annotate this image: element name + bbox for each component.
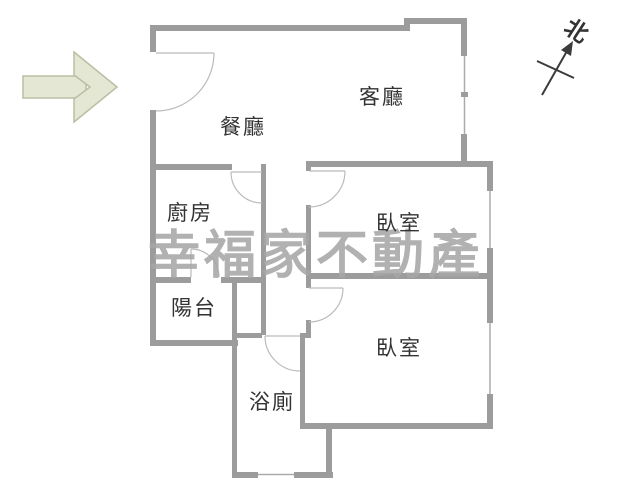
room-label-balcony: 陽台: [171, 292, 217, 322]
wall: [306, 161, 493, 167]
wall: [234, 333, 262, 338]
wall: [487, 161, 493, 190]
wall: [150, 340, 238, 346]
wall: [294, 472, 333, 478]
room-label-kitchen: 廚房: [167, 197, 213, 227]
room-label-bathroom: 浴廁: [249, 386, 295, 416]
wall: [461, 18, 467, 56]
wall: [300, 423, 493, 429]
wall: [461, 134, 467, 164]
bedroom2-door: [309, 288, 343, 322]
room-label-dining: 餐廳: [220, 111, 266, 141]
bathroom-door: [265, 336, 300, 371]
door-arc: [309, 288, 343, 322]
room-label-bedroom-2: 臥室: [376, 332, 422, 362]
wall: [487, 279, 493, 322]
entry-door: [156, 53, 214, 111]
entrance-arrow-icon: [23, 52, 117, 122]
room-label-bedroom-1: 臥室: [376, 207, 422, 237]
door-arc: [156, 53, 214, 111]
compass-cross: [537, 61, 574, 78]
floor-plan-canvas: 幸福家不動產 客廳 餐廳 廚房 臥室 陽台 臥室 浴廁 北: [0, 0, 640, 480]
window-tick: [487, 394, 493, 398]
wall: [150, 25, 410, 31]
window-tick: [487, 248, 493, 252]
window-tick: [461, 92, 468, 97]
window-tick: [487, 187, 493, 191]
wall: [300, 333, 311, 338]
kitchen-door: [231, 172, 262, 203]
entrance-arrow-shaft: [23, 76, 86, 98]
wall: [326, 429, 332, 478]
bedroom1-door: [309, 171, 345, 207]
wall: [300, 338, 305, 425]
door-arc: [265, 336, 300, 371]
door-arc: [231, 172, 262, 203]
room-label-living: 客廳: [359, 81, 405, 111]
wall: [150, 25, 156, 52]
wall: [404, 18, 467, 24]
wall: [232, 333, 237, 478]
window-tick: [487, 319, 493, 323]
wall: [232, 283, 237, 340]
door-arc: [309, 171, 345, 207]
wall: [150, 164, 232, 170]
north-compass-icon: [537, 41, 574, 95]
wall: [306, 161, 311, 171]
